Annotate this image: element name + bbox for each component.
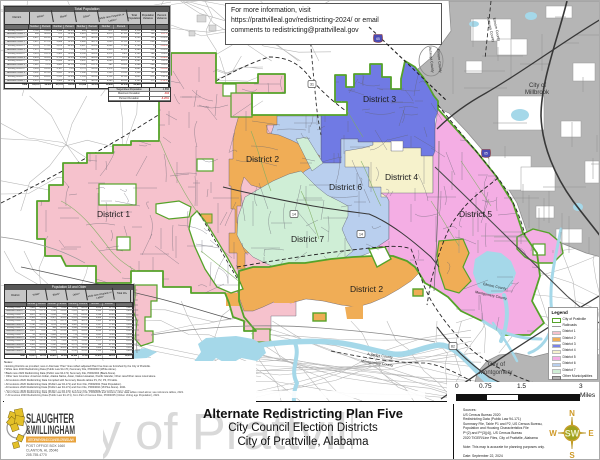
svg-text:CLANTON, AL 35046: CLANTON, AL 35046 <box>26 449 58 453</box>
svg-text:District 2: District 2 <box>246 154 279 164</box>
svg-text:City of: City of <box>488 362 505 368</box>
svg-text:Montgomery: Montgomery <box>479 370 512 376</box>
svg-text:District 1: District 1 <box>97 209 130 219</box>
svg-text:Millbrook: Millbrook <box>525 90 550 96</box>
svg-text:District 7: District 7 <box>291 234 324 244</box>
svg-text:N: N <box>569 409 575 418</box>
svg-text:District 6: District 6 <box>329 182 362 192</box>
svg-text:SW: SW <box>565 429 580 439</box>
svg-text:District 4: District 4 <box>385 172 418 182</box>
svg-text:ATTORNEYS AND COUNSELORS AT LA: ATTORNEYS AND COUNSELORS AT LAW <box>28 438 75 442</box>
svg-text:District 5: District 5 <box>459 209 492 219</box>
svg-text:POST OFFICE BOX 1660: POST OFFICE BOX 1660 <box>26 444 65 448</box>
svg-text:205.755.4770: 205.755.4770 <box>26 453 47 457</box>
svg-text:W: W <box>549 429 557 438</box>
svg-text:SLAUGHTER: SLAUGHTER <box>26 411 74 426</box>
svg-text:14: 14 <box>292 212 296 216</box>
svg-text:14: 14 <box>359 232 363 236</box>
svg-text:82: 82 <box>451 344 455 348</box>
svg-text:65: 65 <box>376 37 380 41</box>
svg-text:E: E <box>588 429 594 438</box>
svg-text:City of: City of <box>529 83 546 89</box>
svg-text:S: S <box>569 451 575 459</box>
svg-text:65: 65 <box>484 152 488 156</box>
svg-text:&WILLINGHAM: &WILLINGHAM <box>26 425 75 437</box>
svg-text:District 2: District 2 <box>350 284 383 294</box>
